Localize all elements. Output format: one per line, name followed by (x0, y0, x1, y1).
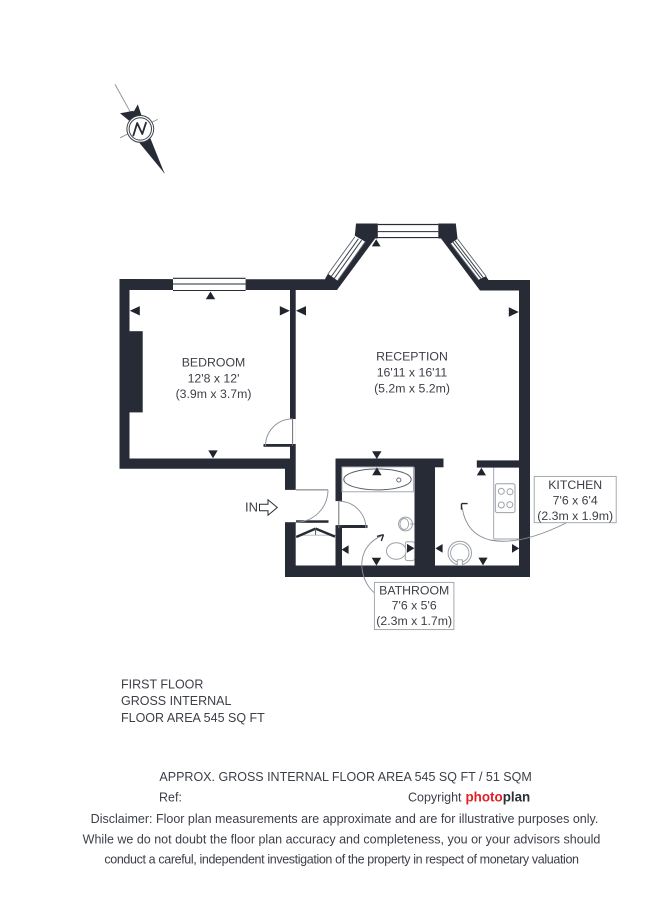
svg-text:conduct a careful, independent: conduct a careful, independent investiga… (104, 853, 579, 867)
svg-text:BATHROOM: BATHROOM (379, 583, 449, 597)
svg-text:7'6 x 6'4: 7'6 x 6'4 (553, 494, 598, 508)
svg-text:FIRST FLOOR: FIRST FLOOR (121, 678, 203, 692)
svg-text:7'6 x 5'6: 7'6 x 5'6 (392, 598, 437, 612)
svg-text:(3.9m x 3.7m): (3.9m x 3.7m) (176, 387, 252, 401)
svg-text:(2.3m x 1.9m): (2.3m x 1.9m) (537, 509, 613, 523)
svg-text:Ref:: Ref: (159, 790, 182, 804)
svg-text:photoplan: photoplan (466, 789, 531, 804)
svg-text:FLOOR AREA 545 SQ FT: FLOOR AREA 545 SQ FT (121, 711, 265, 725)
svg-text:APPROX. GROSS INTERNAL FLOOR A: APPROX. GROSS INTERNAL FLOOR AREA 545 SQ… (159, 770, 531, 784)
svg-text:GROSS INTERNAL: GROSS INTERNAL (121, 694, 231, 708)
svg-text:(5.2m x 5.2m): (5.2m x 5.2m) (374, 381, 450, 395)
svg-text:16'11 x 16'11: 16'11 x 16'11 (377, 366, 448, 380)
svg-text:While we do not doubt the floo: While we do not doubt the floor plan acc… (83, 832, 601, 846)
svg-text:Disclaimer: Floor plan measure: Disclaimer: Floor plan measurements are … (91, 812, 599, 826)
svg-text:BEDROOM: BEDROOM (182, 356, 246, 370)
svg-text:(2.3m x 1.7m): (2.3m x 1.7m) (376, 614, 452, 628)
svg-text:12'8 x 12': 12'8 x 12' (188, 372, 240, 386)
svg-text:RECEPTION: RECEPTION (376, 349, 448, 363)
svg-text:IN: IN (245, 500, 258, 515)
svg-text:Copyright: Copyright (408, 790, 462, 804)
svg-text:KITCHEN: KITCHEN (548, 478, 602, 492)
